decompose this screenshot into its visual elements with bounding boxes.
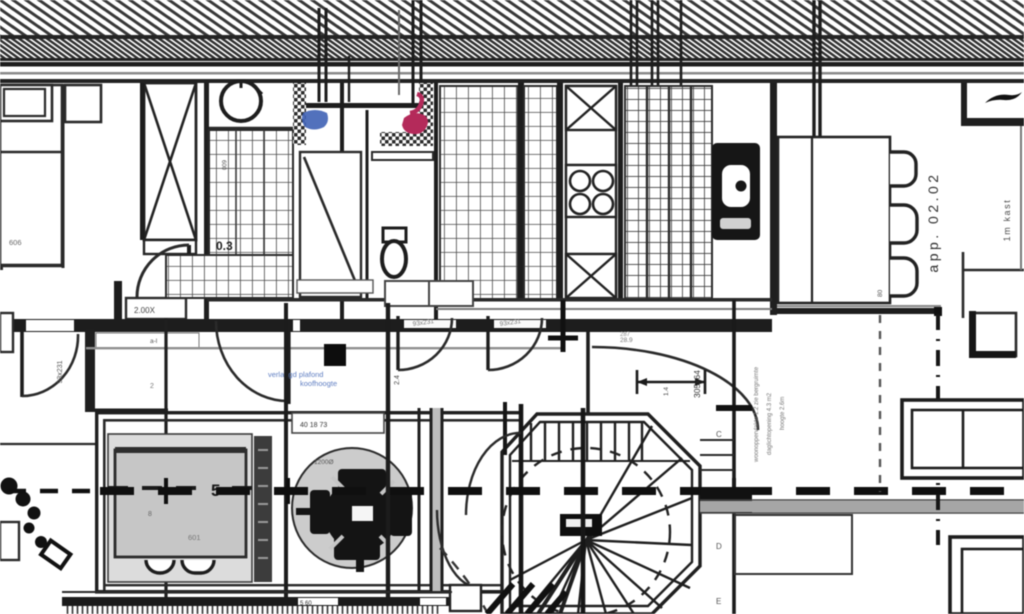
svg-text:2.00X: 2.00X xyxy=(134,306,156,315)
svg-text:1m kast: 1m kast xyxy=(1002,199,1012,242)
svg-text:daglichtopening 4.3 m2: daglichtopening 4.3 m2 xyxy=(767,392,773,455)
svg-text:0.3: 0.3 xyxy=(216,239,233,253)
svg-text:C: C xyxy=(716,430,722,439)
svg-text:E: E xyxy=(716,597,721,606)
svg-text:app. 02.02: app. 02.02 xyxy=(925,171,941,272)
svg-text:606: 606 xyxy=(9,238,22,247)
svg-text:93x231: 93x231 xyxy=(57,360,64,383)
svg-text:woonoppervlakte 1.2 zie bergru: woonoppervlakte 1.2 zie bergruimte xyxy=(754,366,760,463)
svg-text:601: 601 xyxy=(188,533,201,542)
svg-text:287: 287 xyxy=(620,332,631,338)
svg-text:600: 600 xyxy=(220,160,226,171)
svg-text:80: 80 xyxy=(877,289,884,297)
svg-text:1200Ø: 1200Ø xyxy=(314,459,334,466)
svg-text:28.9: 28.9 xyxy=(620,337,633,344)
svg-text:a-l: a-l xyxy=(150,338,158,345)
svg-text:2: 2 xyxy=(150,383,154,390)
svg-text:verlaagd plafond: verlaagd plafond xyxy=(268,370,323,379)
svg-text:8: 8 xyxy=(148,511,152,518)
svg-text:2.4: 2.4 xyxy=(394,375,401,385)
svg-text:305x64: 305x64 xyxy=(692,370,702,398)
svg-text:koofhoogte: koofhoogte xyxy=(300,379,337,388)
svg-text:hoogte 2.6m: hoogte 2.6m xyxy=(780,397,786,430)
svg-text:40 18 73: 40 18 73 xyxy=(300,422,327,429)
svg-text:D: D xyxy=(716,542,722,551)
svg-text:1.4: 1.4 xyxy=(663,387,670,396)
